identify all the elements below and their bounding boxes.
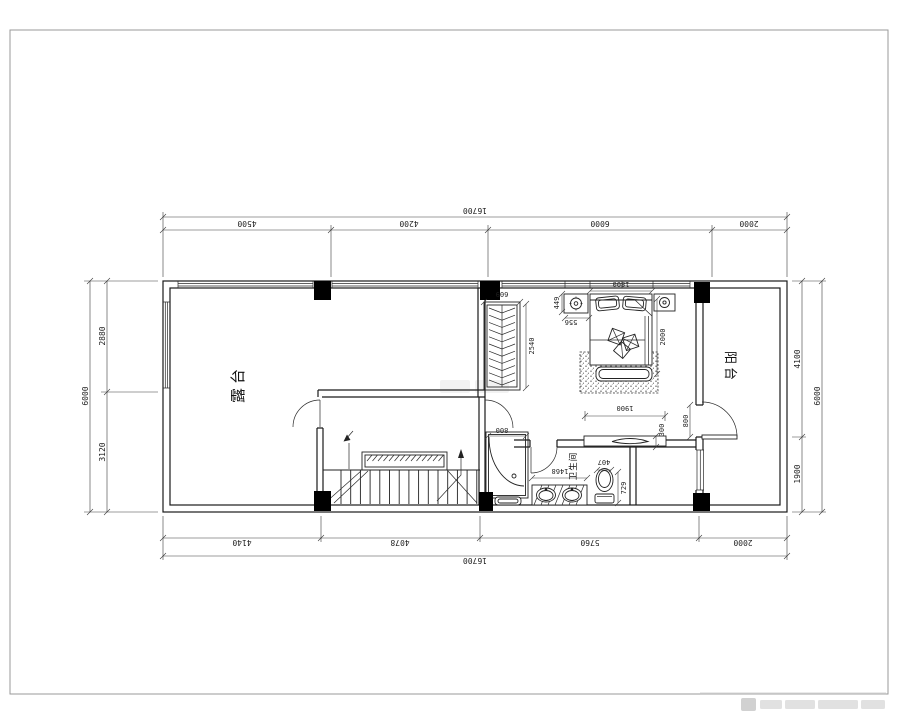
doors — [293, 400, 737, 473]
dim-bed-width: 1800 — [613, 280, 630, 288]
dim-balcony-door-width: 800 — [682, 415, 690, 428]
column — [693, 493, 710, 511]
sheet-border — [10, 30, 888, 694]
wardrobe — [484, 302, 520, 390]
column — [694, 282, 710, 303]
dim-top-seg1: 4500 — [237, 219, 256, 228]
dim-nightstand-width: 556 — [565, 318, 578, 326]
dim-toilet-width: 407 — [598, 458, 611, 466]
dim-wardrobe-depth: 609 — [496, 290, 509, 298]
shower-drain-icon — [512, 474, 516, 478]
terrace-door — [293, 400, 320, 427]
nightstand-left — [564, 294, 588, 313]
room-label-balcony: 阳台 — [722, 351, 737, 383]
floor-plan-canvas: 16700 4500 4200 6000 2000 4140 4078 5760… — [0, 0, 900, 720]
dim-top-seg3: 6000 — [590, 219, 609, 228]
sink-right — [563, 488, 582, 502]
column — [479, 492, 493, 511]
dim-left-lower: 3120 — [98, 442, 107, 461]
dim-vanity-length: 1468 — [552, 467, 569, 475]
toilet — [595, 469, 614, 504]
dim-top-seg2: 4200 — [399, 219, 418, 228]
balcony-door — [702, 402, 737, 439]
dim-right-upper: 4100 — [793, 349, 802, 368]
shower-threshold — [495, 497, 521, 505]
bed — [590, 294, 652, 365]
dim-toilet-length: 729 — [620, 482, 628, 495]
tv-cabinet — [584, 436, 666, 446]
room-label-terrace: 露台 — [229, 365, 247, 403]
dim-left-total: 6000 — [81, 386, 90, 405]
dim-bottom: 4140 4078 5760 2000 16700 — [160, 516, 790, 565]
vanity — [532, 485, 587, 505]
stairs — [323, 431, 480, 504]
stair-up-arrow — [437, 449, 464, 501]
dim-top-seg4: 2000 — [739, 219, 758, 228]
hall-arc-opening — [485, 400, 513, 428]
dim-bottom-seg3: 5760 — [580, 538, 599, 547]
dim-shower-width: 800 — [496, 426, 509, 434]
room-labels: 露台 阳台 卫生间 — [229, 351, 737, 480]
dim-bottom-total: 16700 — [463, 556, 487, 565]
dim-bottom-seg4: 2000 — [733, 538, 752, 547]
dim-right-lower: 1900 — [793, 464, 802, 483]
dim-bed-length: 2000 — [659, 329, 667, 346]
column — [314, 491, 331, 511]
column — [314, 281, 331, 300]
dim-nightstand-depth: 449 — [553, 297, 561, 310]
dim-top-total: 16700 — [463, 206, 487, 215]
dim-left-upper: 2880 — [98, 326, 107, 345]
dim-right-total: 6000 — [813, 386, 822, 405]
stair-entry-arrow — [344, 431, 354, 469]
dim-tv-cabinet-length: 1900 — [617, 404, 634, 412]
watermark-logo-icon — [741, 698, 756, 711]
watermark-bottom-right — [700, 692, 886, 711]
dim-wardrobe-length: 2540 — [528, 338, 536, 355]
dim-bottom-seg2: 4078 — [390, 538, 409, 547]
room-label-bathroom: 卫生间 — [568, 452, 579, 481]
sink-left — [537, 488, 556, 502]
dim-tv-cabinet-depth: 300 — [658, 424, 666, 437]
dim-right: 4100 1900 6000 — [792, 278, 826, 515]
watermark-center — [440, 380, 509, 393]
dim-top: 16700 4500 4200 6000 2000 — [160, 206, 790, 277]
dim-left: 6000 2880 3120 — [81, 278, 158, 515]
floor-plan-sheet: 16700 4500 4200 6000 2000 4140 4078 5760… — [0, 0, 900, 720]
bench — [596, 367, 652, 381]
dim-bottom-seg1: 4140 — [232, 538, 251, 547]
